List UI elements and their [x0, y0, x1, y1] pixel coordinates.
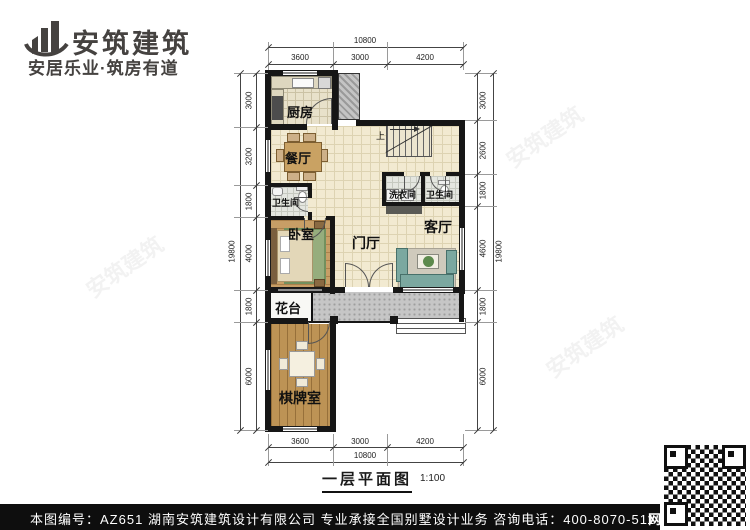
wall-segment: [332, 70, 338, 130]
wall-segment: [446, 172, 465, 176]
wall-segment: [393, 287, 403, 293]
caption-scale: 1:100: [420, 473, 445, 484]
door-leaf: [345, 263, 346, 287]
window: [265, 240, 271, 276]
wall-segment: [390, 316, 398, 324]
wall-segment: [265, 183, 312, 187]
dim-right-seg: 6000: [479, 359, 488, 395]
dim-right-seg: 1800: [479, 289, 488, 325]
window: [283, 70, 317, 76]
room-label-dining: 餐厅: [285, 148, 311, 167]
dim-bottom-seg: 4200: [395, 437, 455, 446]
dim-right-seg: 4600: [479, 231, 488, 267]
dim-right-seg: 2600: [479, 133, 488, 169]
dimension-line: [268, 462, 464, 463]
room-label-living: 客厅: [424, 217, 452, 237]
dim-left-seg: 1800: [245, 289, 254, 325]
room-label-game-room: 棋牌室: [279, 388, 321, 408]
dim-bottom-seg: 3600: [270, 437, 330, 446]
dim-bottom-seg: 3000: [330, 437, 390, 446]
dim-top-seg: 4200: [395, 53, 455, 62]
room-label-foyer: 门厅: [352, 233, 380, 253]
extension-line: [465, 120, 497, 121]
dim-left-seg: 4000: [245, 236, 254, 272]
company-line: 湖南安筑建筑设计有限公司 专业承接全国别墅设计业务 咨询电话：400-8070-…: [148, 509, 655, 528]
wall-segment: [382, 172, 386, 206]
dim-left-seg: 6000: [245, 359, 254, 395]
caption-title: 一层平面图: [322, 468, 412, 493]
wall-segment: [382, 202, 465, 206]
qr-finder: [664, 502, 688, 526]
dim-left-seg: 3000: [245, 83, 254, 119]
door-swing-arc: [308, 322, 330, 344]
dim-left-seg: 3200: [245, 139, 254, 175]
drawing-number: 本图编号：AZ651: [30, 509, 143, 528]
extension-line: [234, 127, 268, 128]
door-leaf: [392, 263, 393, 287]
window: [265, 350, 271, 390]
wall-segment: [459, 292, 464, 322]
qr-finder: [722, 445, 746, 469]
dimension-line: [268, 64, 464, 65]
qr-finder: [664, 445, 688, 469]
wall-segment: [308, 183, 312, 198]
wall-segment: [330, 318, 336, 432]
dimension-line: [268, 447, 464, 448]
dim-top-seg: 3000: [330, 53, 390, 62]
room-label-laundry: 洗衣间: [389, 188, 416, 201]
wall-segment: [330, 216, 335, 294]
dim-right-seg: 1800: [479, 173, 488, 209]
footer-bar: 本图编号：AZ651 湖南安筑建筑设计有限公司 专业承接全国别墅设计业务 咨询电…: [0, 504, 750, 530]
wall-segment: [356, 120, 465, 126]
door-leaf: [308, 322, 309, 344]
dim-bottom-total: 10800: [330, 451, 400, 460]
dimension-line: [268, 47, 464, 48]
qr-code: [660, 441, 750, 530]
dim-top-seg: 3600: [270, 53, 330, 62]
room-label-bath-left: 卫生间: [272, 196, 299, 209]
dim-top-total: 10800: [330, 36, 400, 45]
stairs-up-label: 上: [376, 129, 385, 142]
dim-right-seg: 3000: [479, 83, 488, 119]
window: [283, 426, 317, 432]
dim-left-seg: 1800: [245, 184, 254, 220]
room-label-bedroom: 卧室: [288, 224, 314, 243]
wall-segment: [330, 316, 338, 324]
door-swing-arc: [345, 263, 369, 287]
window: [265, 140, 271, 172]
room-label-flower-bed: 花台: [275, 298, 301, 317]
room-label-kitchen: 厨房: [287, 102, 313, 121]
room-label-bath-right: 卫生间: [426, 188, 453, 201]
dim-right-total: 19800: [495, 234, 504, 270]
door-swing-arc: [369, 263, 393, 287]
wall-segment: [265, 216, 304, 220]
dim-left-total: 19800: [228, 234, 237, 270]
wall-segment: [338, 321, 390, 323]
wall-segment: [265, 124, 307, 130]
window: [403, 287, 453, 293]
window: [278, 288, 322, 292]
poster-page: 安筑建筑 安居乐业·筑房有道 安筑建筑 安筑建筑 安筑建筑: [0, 0, 750, 530]
door-leaf: [331, 98, 332, 124]
window: [459, 228, 465, 270]
